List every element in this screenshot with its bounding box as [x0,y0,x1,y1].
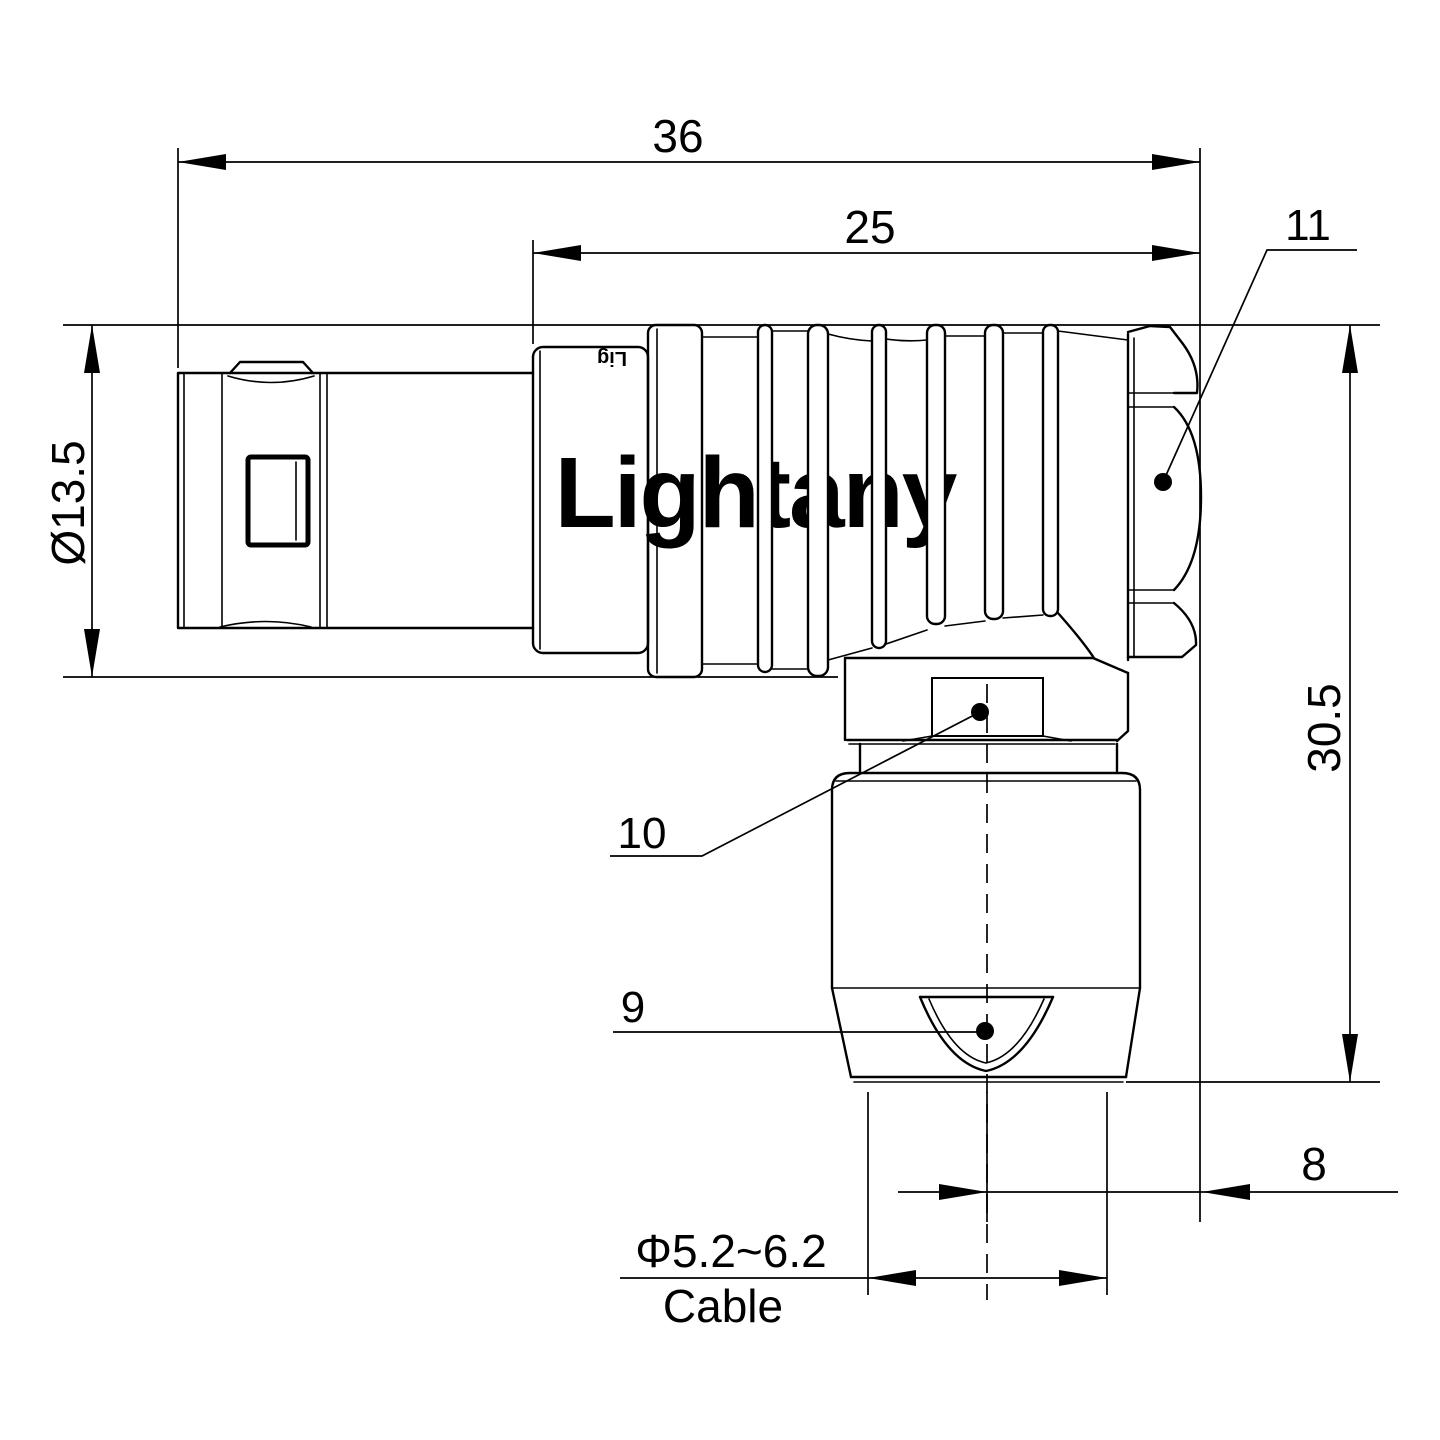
callout-10-label: 10 [618,809,667,858]
barrel-outline [178,373,533,628]
valley-top [828,334,872,341]
arrowhead [1342,325,1358,373]
shell-engraving: Lig [597,347,627,369]
endcap-top-edge [1058,331,1128,340]
valley-bottom [945,621,985,626]
valley-bottom [886,630,927,644]
clamp-nut-band-right [1117,673,1128,741]
rib [758,325,772,672]
arrowhead [868,1270,916,1286]
dimension-lines: 36 25 Ø13.5 30.5 8 Φ5.2~6.2 Cable [42,110,1398,1332]
connector-elbow-drawing: Lightany Lig [0,0,1440,1440]
dim-cable-diameter-label: Φ5.2~6.2 [635,1225,826,1277]
arrowhead [1342,1034,1358,1082]
leader-dot [971,703,989,721]
alignment-key-bump [230,362,313,373]
dim-13-5-label: Ø13.5 [42,440,94,565]
rib [872,325,886,648]
arrowhead [939,1184,987,1200]
arrowhead [84,629,100,677]
clamp-nut-band-top [845,658,1128,673]
technical-drawing-page: Lightany Lig [0,0,1440,1440]
elbow-bend-edge [1058,613,1094,658]
callout-9-label: 9 [621,983,645,1032]
leader-dot [976,1022,994,1040]
dim-8-label: 8 [1301,1138,1327,1190]
cable-label: Cable [663,1280,783,1332]
valley-top [886,339,927,341]
rib [985,325,1003,619]
nut-lobe-top [1128,326,1197,393]
leader-11 [1163,250,1357,482]
dim-30-5-label: 30.5 [1298,683,1350,773]
arrowhead [1059,1270,1107,1286]
rear-hex-nut [1128,326,1201,660]
elbow-lower-section [832,658,1140,1300]
dim-36-label: 36 [652,110,703,162]
arrowhead [84,325,100,373]
barrel-surface-arc-bottom [220,622,311,628]
rib [927,325,945,624]
rib [808,325,828,676]
nut-lobe-bottom [1128,603,1196,657]
latch-window [248,457,308,545]
arrowhead [533,245,581,261]
barrel-surface-arc-top [228,376,314,383]
arrowhead [1152,245,1200,261]
arrowhead [178,154,226,170]
leader-dot [1154,473,1172,491]
dim-25-label: 25 [844,201,895,253]
arrowhead [1202,1184,1250,1200]
nut-lobe-middle [1174,407,1201,590]
front-barrel [178,362,533,628]
cable-clamp-body [832,773,1140,988]
callout-11-label: 11 [1285,201,1331,250]
valley-bottom [1003,615,1043,618]
arrowhead [1152,154,1200,170]
clamp-cone-right [1126,988,1140,1077]
watermark-text: Lightany [555,437,958,549]
rib [1043,325,1058,616]
